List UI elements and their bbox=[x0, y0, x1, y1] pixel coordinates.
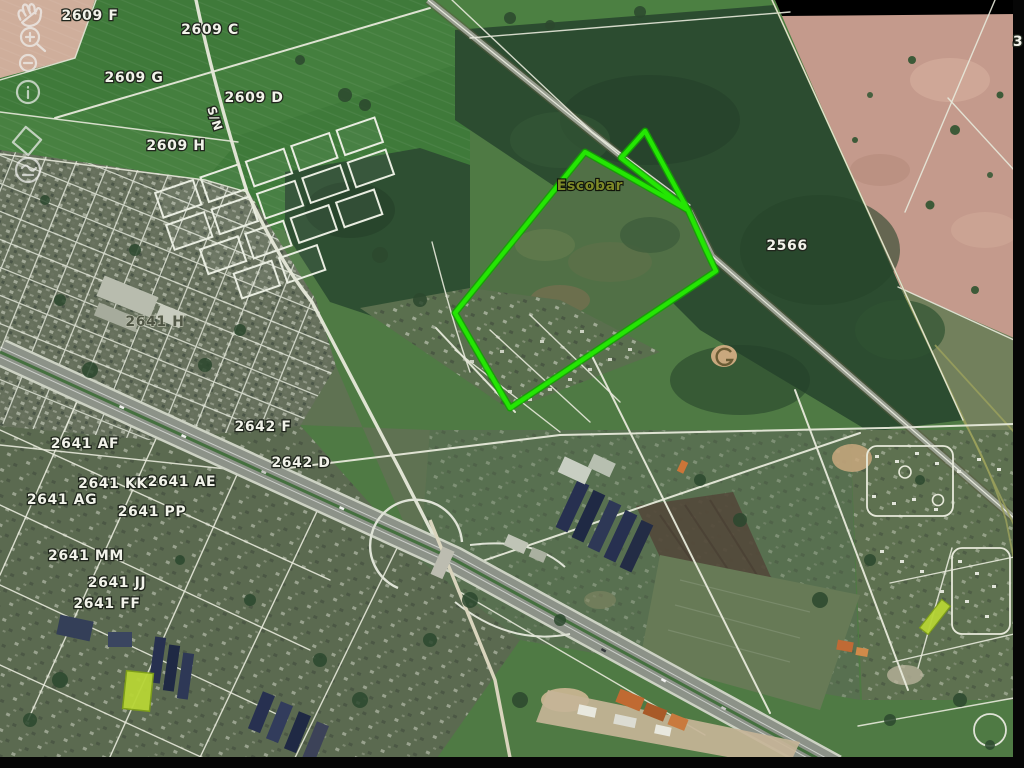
edge-label-3: 3 bbox=[1013, 34, 1023, 50]
parcel-label-2641-af: 2641 AF bbox=[51, 436, 119, 452]
satellite-map[interactable]: 2609 F 2609 C 2609 G 2609 D 2609 H S/N E… bbox=[0, 0, 1024, 768]
parcel-label-2641-ae: 2641 AE bbox=[148, 474, 216, 490]
highlighted-parcel-1 bbox=[123, 671, 154, 712]
parcel-label-2609-h: 2609 H bbox=[146, 138, 205, 154]
parcel-label-2642-d: 2642 D bbox=[271, 455, 330, 471]
parcel-label-2609-f: 2609 F bbox=[61, 8, 118, 24]
map-viewport: 2609 F 2609 C 2609 G 2609 D 2609 H S/N E… bbox=[0, 0, 1024, 768]
g-landmark bbox=[711, 345, 737, 367]
parcel-label-2609-g: 2609 G bbox=[105, 70, 164, 86]
parcel-label-2609-c: 2609 C bbox=[181, 22, 239, 38]
parcel-label-2642-f: 2642 F bbox=[234, 419, 291, 435]
parcel-label-2641-mm: 2641 MM bbox=[48, 548, 124, 564]
parcel-label-2641-ff: 2641 FF bbox=[73, 596, 140, 612]
right-letterbox-bar bbox=[1013, 0, 1024, 768]
parcel-label-2641-pp: 2641 PP bbox=[118, 504, 187, 520]
parcel-label-2641-h: 2641 H bbox=[125, 314, 184, 330]
parcel-label-2641-jj: 2641 JJ bbox=[88, 575, 146, 591]
place-label-escobar: Escobar bbox=[557, 178, 623, 194]
parcel-label-2641-ag: 2641 AG bbox=[27, 492, 97, 508]
parcel-label-2566: 2566 bbox=[766, 238, 807, 254]
bottom-letterbox-bar bbox=[0, 757, 1024, 768]
parcel-label-2641-kk: 2641 KK bbox=[78, 476, 148, 492]
parcel-label-2609-d: 2609 D bbox=[224, 90, 283, 106]
